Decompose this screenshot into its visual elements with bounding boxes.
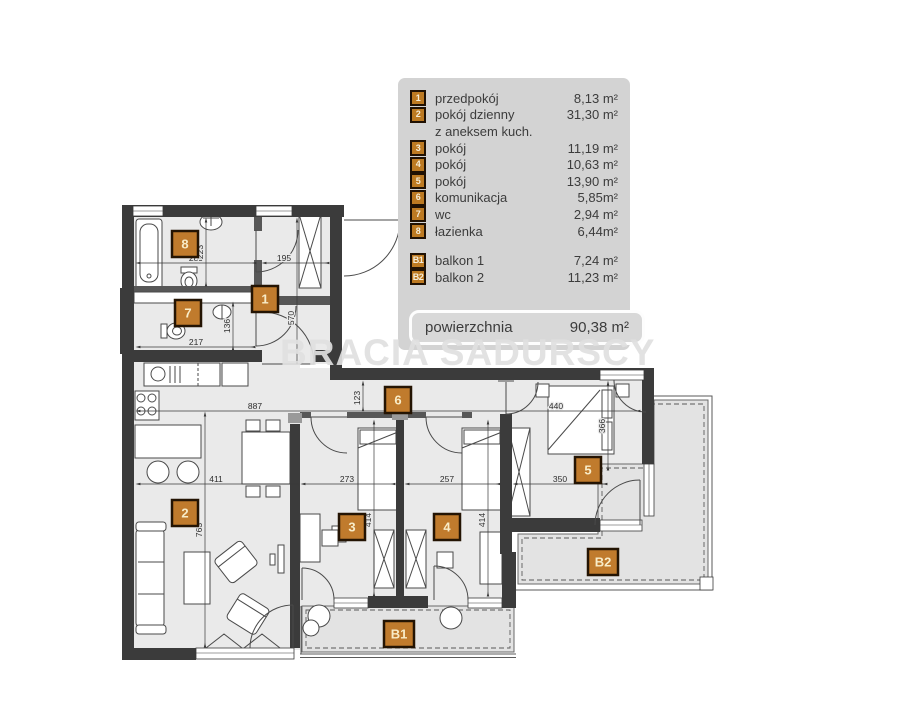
legend-room-name: pokój [435,157,567,172]
legend-room-name: pokój dzienny [435,107,567,122]
legend-row: B2balkon 211,23 m² [410,269,618,286]
kitchen-stove [135,391,159,420]
svg-text:6: 6 [394,393,401,408]
legend-row: 8łazienka6,44m² [410,223,618,240]
legend-room-name: pokój [435,174,567,189]
svg-text:4: 4 [443,520,451,535]
wall-sanitary-bottom [314,350,342,362]
legend-room-area: 5,85m² [578,190,618,205]
room-badge-1: 1 [252,286,278,312]
legend-row: B1balkon 17,24 m² [410,252,618,269]
kitchen-sink-counter [144,363,220,386]
legend-row: 5pokój13,90 m² [410,173,618,190]
bathtub [136,219,162,289]
dimension-label: 366 [597,419,607,433]
svg-text:B2: B2 [595,555,612,570]
wardrobe-room3 [374,530,394,588]
dimension-label: 195 [277,253,291,263]
balcony-door-room5 [600,520,642,531]
bed-room4 [462,428,502,510]
chair-room3 [322,530,338,546]
dimension-label: 217 [189,337,203,347]
legend-room-name: balkon 2 [435,270,568,285]
entrance-door [344,220,400,276]
legend-room-area: 6,44m² [578,224,618,239]
svg-text:1: 1 [261,292,268,307]
wall-room4-corner [502,552,516,608]
desk-room3 [300,514,320,562]
wall-hall-bath [254,217,262,231]
wall-living-room3 [290,424,300,648]
room-badge-5: 5 [575,457,601,483]
dimension-label: 440 [549,401,563,411]
wall-bottom-left [122,648,196,660]
balcony-plant [303,620,319,636]
desk-room4 [480,532,502,584]
dimension-label: 123 [352,391,362,405]
svg-text:8: 8 [181,237,188,252]
legend-room-badge: B2 [410,269,426,285]
legend-room-area: 31,30 m² [567,107,618,122]
legend-room-area: 2,94 m² [574,207,618,222]
legend-room-name: przedpokój [435,91,574,106]
floorplan-canvas: 2892231955701362178871234112732573507634… [0,0,912,705]
wall-bath-wc [134,286,258,292]
legend-room-area: 8,13 m² [574,91,618,106]
legend-room-name: komunikacja [435,190,578,205]
room-badge-2: 2 [172,500,198,526]
legend-row: 4pokój10,63 m² [410,156,618,173]
legend-row: 1przedpokój8,13 m² [410,90,618,107]
wall-room4-room5 [500,414,512,554]
legend-room-badge: B1 [410,253,426,269]
legend-room-area: 13,90 m² [567,174,618,189]
door-jamb [288,413,302,423]
svg-text:5: 5 [584,463,591,478]
dimension-label: 411 [209,474,223,484]
wall-room5-bottom [506,518,600,532]
legend-room-badge: 6 [410,190,426,206]
room-badge-7: 7 [175,300,201,326]
dimension-label: 273 [340,474,354,484]
legend-room-name: pokój [435,141,568,156]
room-badge-8: 8 [172,231,198,257]
dimension-label: 350 [553,474,567,484]
legend-room-badge: 8 [410,223,426,239]
total-area-pill: powierzchnia 90,38 m² [409,310,645,345]
total-area-label: powierzchnia [425,319,513,336]
legend-room-area: 7,24 m² [574,253,618,268]
nightstand-room4 [437,552,453,568]
svg-text:B1: B1 [391,627,408,642]
room-badge-B1: B1 [384,621,414,647]
dimension-label: 570 [286,311,296,325]
sofa [136,522,166,634]
wall-hall-right [330,205,342,373]
room-badge-3: 3 [339,514,365,540]
wall-left [122,205,134,660]
legend-room-badge: 1 [410,90,426,106]
legend-room-area: 10,63 m² [567,157,618,172]
legend-row: 7wc2,94 m² [410,206,618,223]
legend-room-area: 11,23 m² [568,270,618,285]
legend-room-name2: z aneksem kuch. [435,124,618,139]
legend-room-badge: 5 [410,173,426,189]
legend-room-badge: 2 [410,107,426,123]
legend-room-badge: 3 [410,140,426,156]
legend-row: 3pokój11,19 m² [410,140,618,157]
dimension-label: 414 [477,513,487,527]
wardrobe-room4 [406,530,426,588]
legend-row-continuation: z aneksem kuch. [410,123,618,140]
legend-room-name: balkon 1 [435,253,574,268]
svg-text:3: 3 [348,520,355,535]
svg-text:2: 2 [181,506,188,521]
kitchen-fridge [222,363,248,386]
room-badge-4: 4 [434,514,460,540]
wall-sanitary-bottom [134,350,262,362]
legend-row: 6komunikacja5,85m² [410,190,618,207]
legend-room-area: 11,19 m² [568,141,618,156]
svg-text:7: 7 [184,306,191,321]
room-badge-6: 6 [385,387,411,413]
legend-room-name: wc [435,207,574,222]
room-badge-B2: B2 [588,549,618,575]
legend-room-name: łazienka [435,224,578,239]
legend-room-badge: 4 [410,157,426,173]
washbasin-wc [213,305,231,319]
wall-corridor [462,412,472,418]
legend-panel: 1przedpokój8,13 m²2pokój dzienny31,30 m²… [398,78,630,350]
legend-room-list: 1przedpokój8,13 m²2pokój dzienny31,30 m²… [410,90,618,286]
balcony-plant [440,607,462,629]
coffee-table [184,552,210,604]
dimension-label: 136 [222,319,232,333]
balcony-2-corner-post [700,577,713,590]
window-living [196,648,294,659]
dimension-label: 887 [248,401,262,411]
wall-right-upper [642,368,654,464]
total-area-value: 90,38 m² [570,319,629,336]
wall-left-thick [120,288,134,354]
dimension-label: 257 [440,474,454,484]
legend-room-badge: 7 [410,206,426,222]
kitchen-stool [147,461,169,483]
wall-rooms-bottom [368,596,428,608]
wall-room3-room4 [396,420,404,596]
kitchen-counter [135,425,201,458]
legend-row: 2pokój dzienny31,30 m² [410,107,618,124]
bed-room3 [358,428,398,510]
kitchen-stool [177,461,199,483]
wardrobe-hall [299,214,321,288]
